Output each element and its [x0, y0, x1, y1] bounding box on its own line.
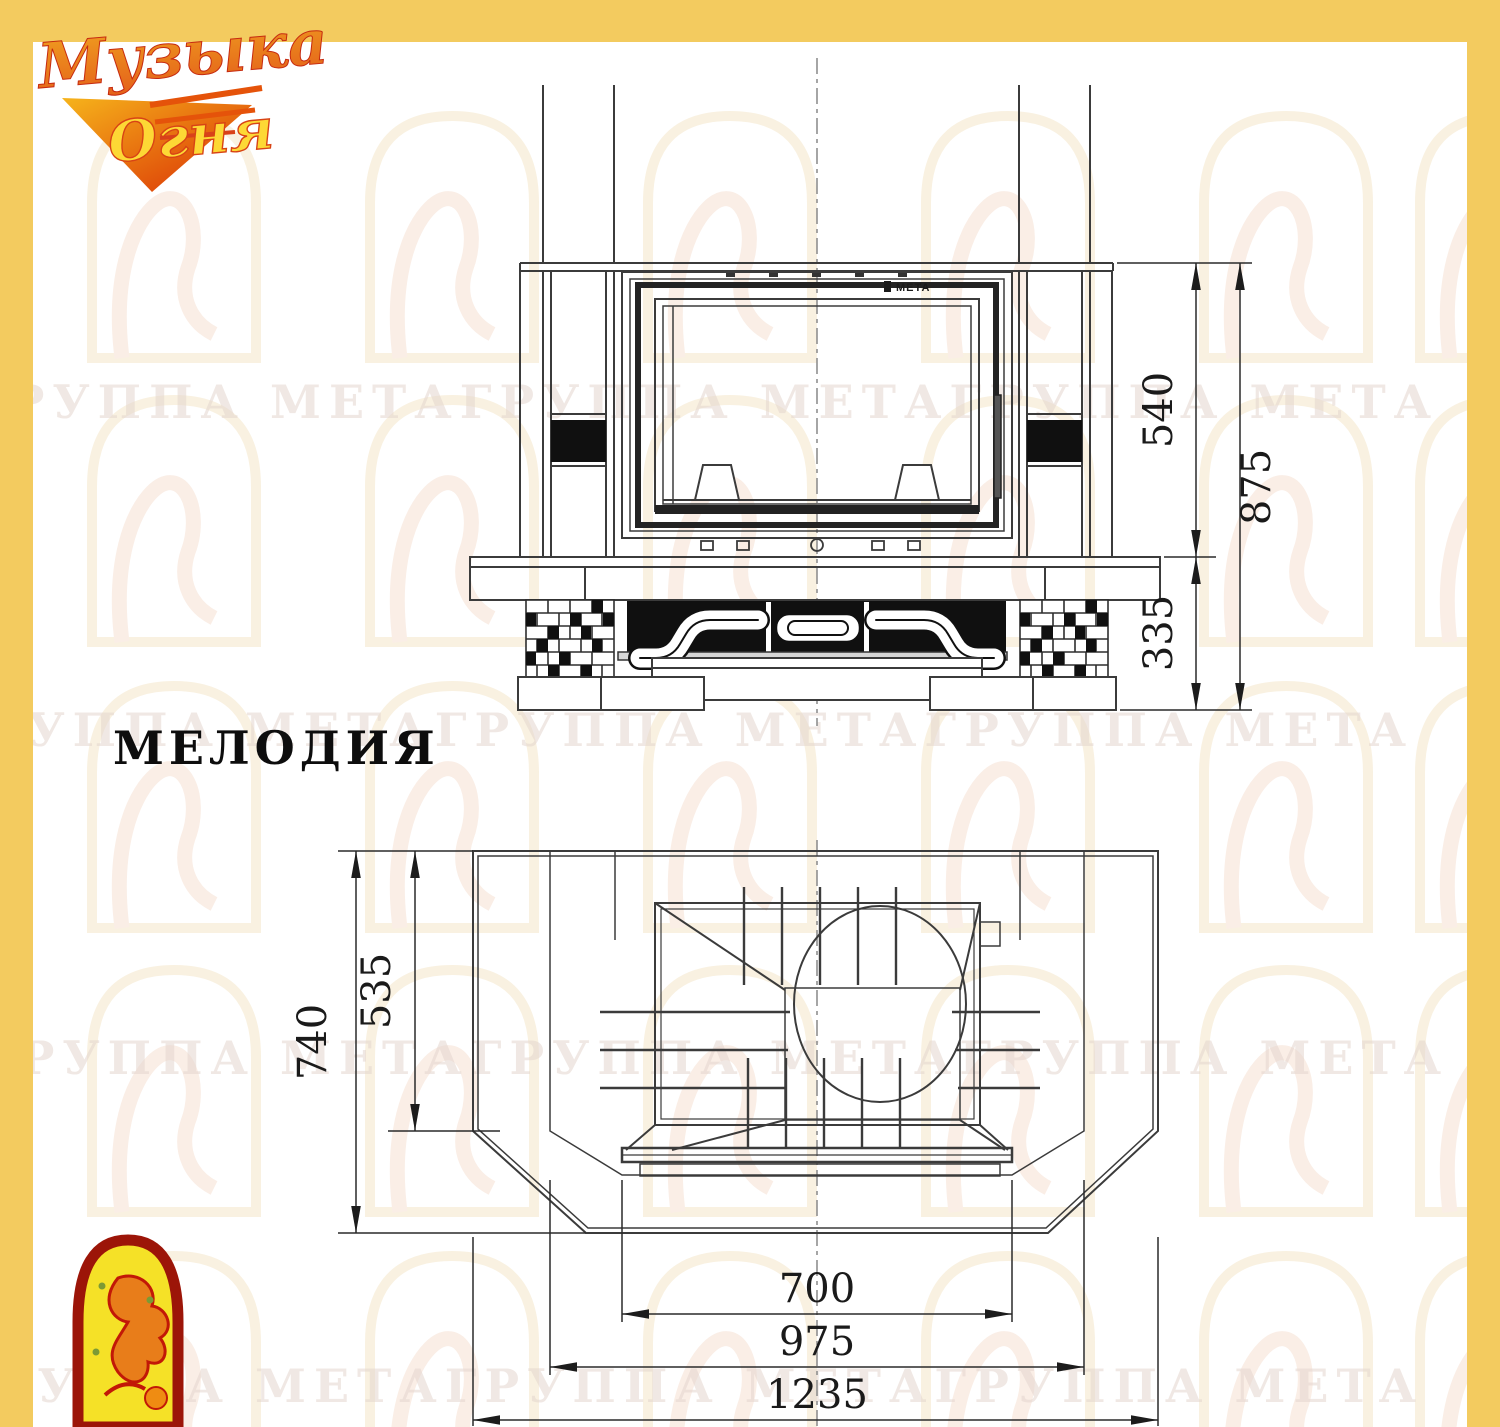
dim-label-740: 740 — [290, 1004, 336, 1080]
fireplace-technical-drawing: ГРУППА МЕТАГРУППА МЕТАГРУППА МЕТА ГРУППА… — [0, 0, 1500, 1427]
andiron-right — [895, 465, 939, 500]
dim-label-975: 975 — [779, 1319, 855, 1365]
dim-label-540: 540 — [1136, 372, 1182, 448]
dim-label-875: 875 — [1234, 449, 1280, 525]
watermark-text-row: ГРУППА МЕТАГРУППА МЕТАГРУППА МЕТА — [0, 375, 1439, 429]
dim-label-335: 335 — [1136, 595, 1182, 671]
page: ГРУППА МЕТАГРУППА МЕТАГРУППА МЕТА ГРУППА… — [0, 0, 1500, 1427]
base-recess — [618, 602, 1007, 660]
column-black-band — [551, 420, 606, 462]
andiron-left — [695, 465, 739, 500]
dim-label-1235: 1235 — [766, 1372, 868, 1418]
brick-column-right — [1020, 600, 1108, 677]
door-handle — [994, 395, 1001, 498]
watermark-text-row: ГРУППА МЕТАГРУППА МЕТАГРУППА МЕТА — [0, 1031, 1449, 1085]
brand-logo-mark — [884, 281, 891, 292]
logo: Музыка Огня — [33, 5, 331, 192]
brand-mark-text: МЕТА — [896, 282, 930, 294]
dim-label-535: 535 — [354, 953, 400, 1029]
brick-column-left — [526, 600, 614, 677]
column-black-band — [1027, 420, 1082, 462]
dim-label-700: 700 — [779, 1266, 855, 1312]
model-name-label: МЕЛОДИЯ — [113, 721, 440, 775]
left-column — [543, 271, 614, 557]
firebird-emblem — [78, 1240, 178, 1427]
